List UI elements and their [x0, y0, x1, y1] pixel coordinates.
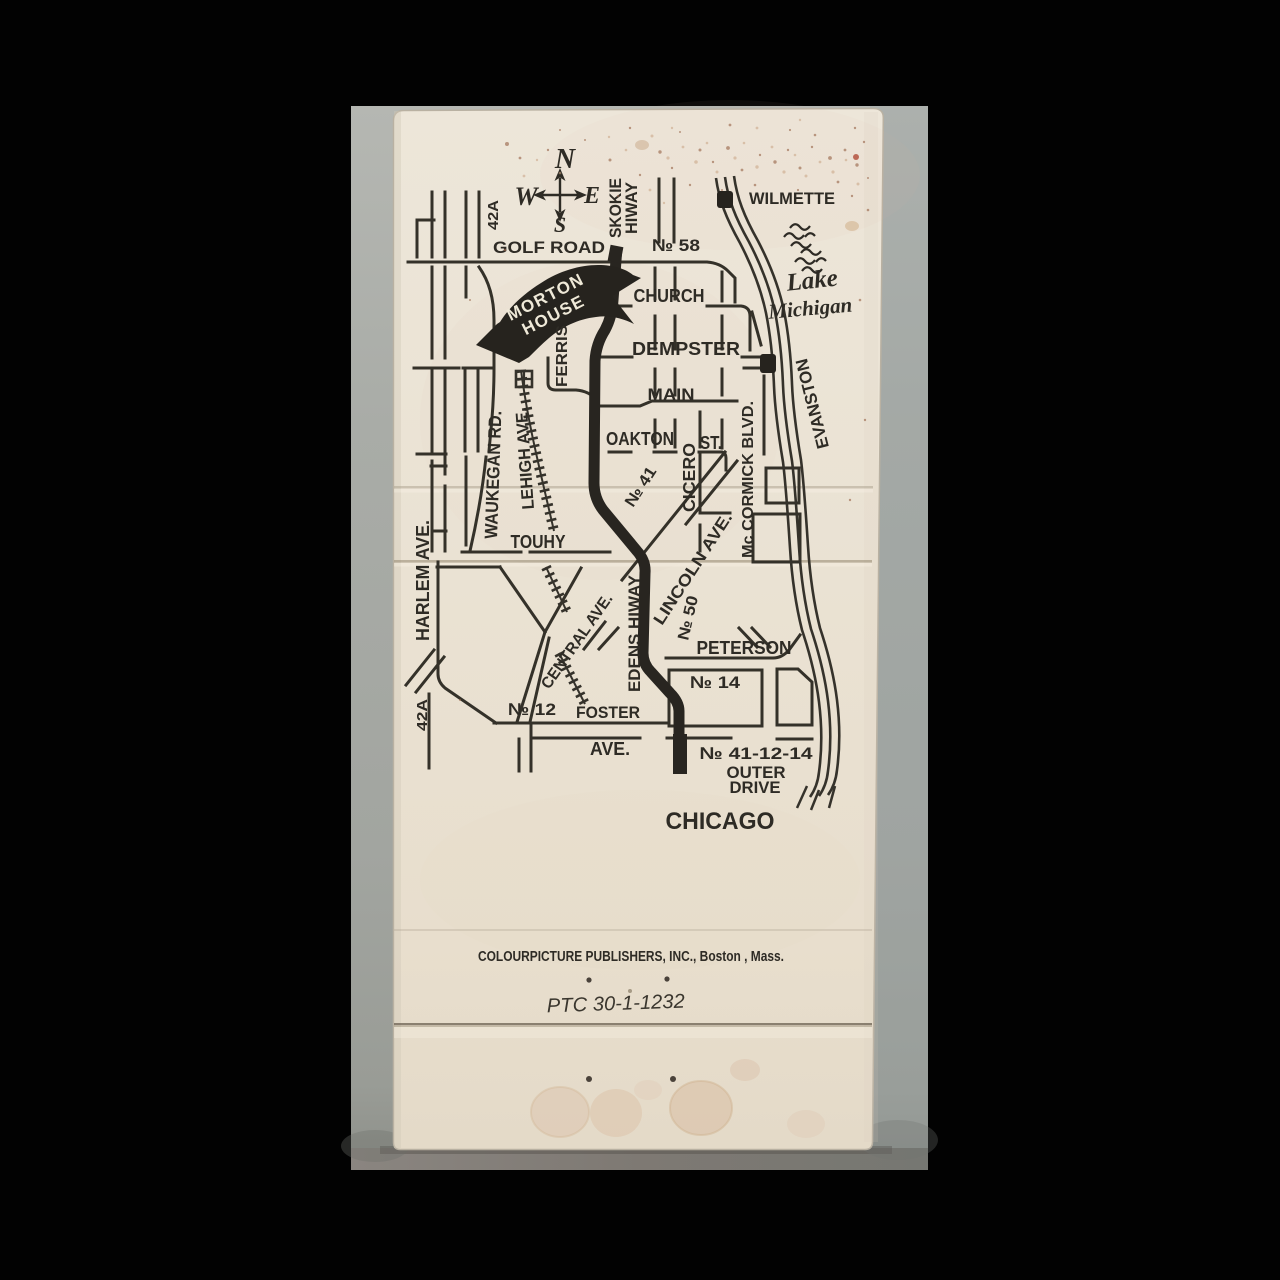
- svg-text:42A: 42A: [414, 699, 431, 731]
- svg-text:HIWAY: HIWAY: [622, 181, 641, 234]
- svg-text:OAKTON: OAKTON: [606, 429, 674, 449]
- svg-text:CICERO: CICERO: [679, 443, 699, 512]
- svg-text:COLOURPICTURE PUBLISHERS, INC.: COLOURPICTURE PUBLISHERS, INC., Boston ,…: [478, 949, 784, 965]
- svg-text:№ 41-12-14: № 41-12-14: [700, 744, 814, 763]
- svg-text:EDENS HIWAY: EDENS HIWAY: [625, 574, 644, 692]
- svg-text:№ 58: № 58: [652, 236, 700, 255]
- svg-text:FOSTER: FOSTER: [576, 703, 640, 722]
- svg-text:N: N: [554, 144, 577, 175]
- svg-text:CHICAGO: CHICAGO: [666, 808, 775, 835]
- svg-text:42A: 42A: [485, 200, 502, 230]
- svg-text:CHURCH: CHURCH: [634, 286, 705, 306]
- svg-text:AVE.: AVE.: [590, 739, 630, 759]
- svg-text:TOUHY: TOUHY: [511, 532, 566, 552]
- svg-text:Lake: Lake: [784, 265, 839, 297]
- svg-text:W: W: [514, 182, 539, 211]
- svg-text:GOLF ROAD: GOLF ROAD: [493, 238, 605, 257]
- svg-text:E: E: [583, 183, 600, 209]
- svg-text:WILMETTE: WILMETTE: [749, 189, 835, 208]
- svg-text:ST.: ST.: [700, 433, 722, 453]
- svg-text:DEMPSTER: DEMPSTER: [632, 338, 740, 359]
- svg-text:FERRIS: FERRIS: [554, 325, 571, 387]
- svg-text:HARLEM AVE.: HARLEM AVE.: [412, 520, 433, 641]
- svg-text:Mc CORMICK BLVD.: Mc CORMICK BLVD.: [740, 401, 757, 558]
- svg-text:DRIVE: DRIVE: [730, 778, 781, 797]
- svg-text:№ 14: № 14: [690, 673, 741, 692]
- svg-text:PETERSON: PETERSON: [697, 638, 792, 658]
- svg-text:№ 12: № 12: [508, 700, 556, 719]
- svg-text:MAIN: MAIN: [648, 385, 695, 404]
- svg-text:S: S: [554, 212, 566, 237]
